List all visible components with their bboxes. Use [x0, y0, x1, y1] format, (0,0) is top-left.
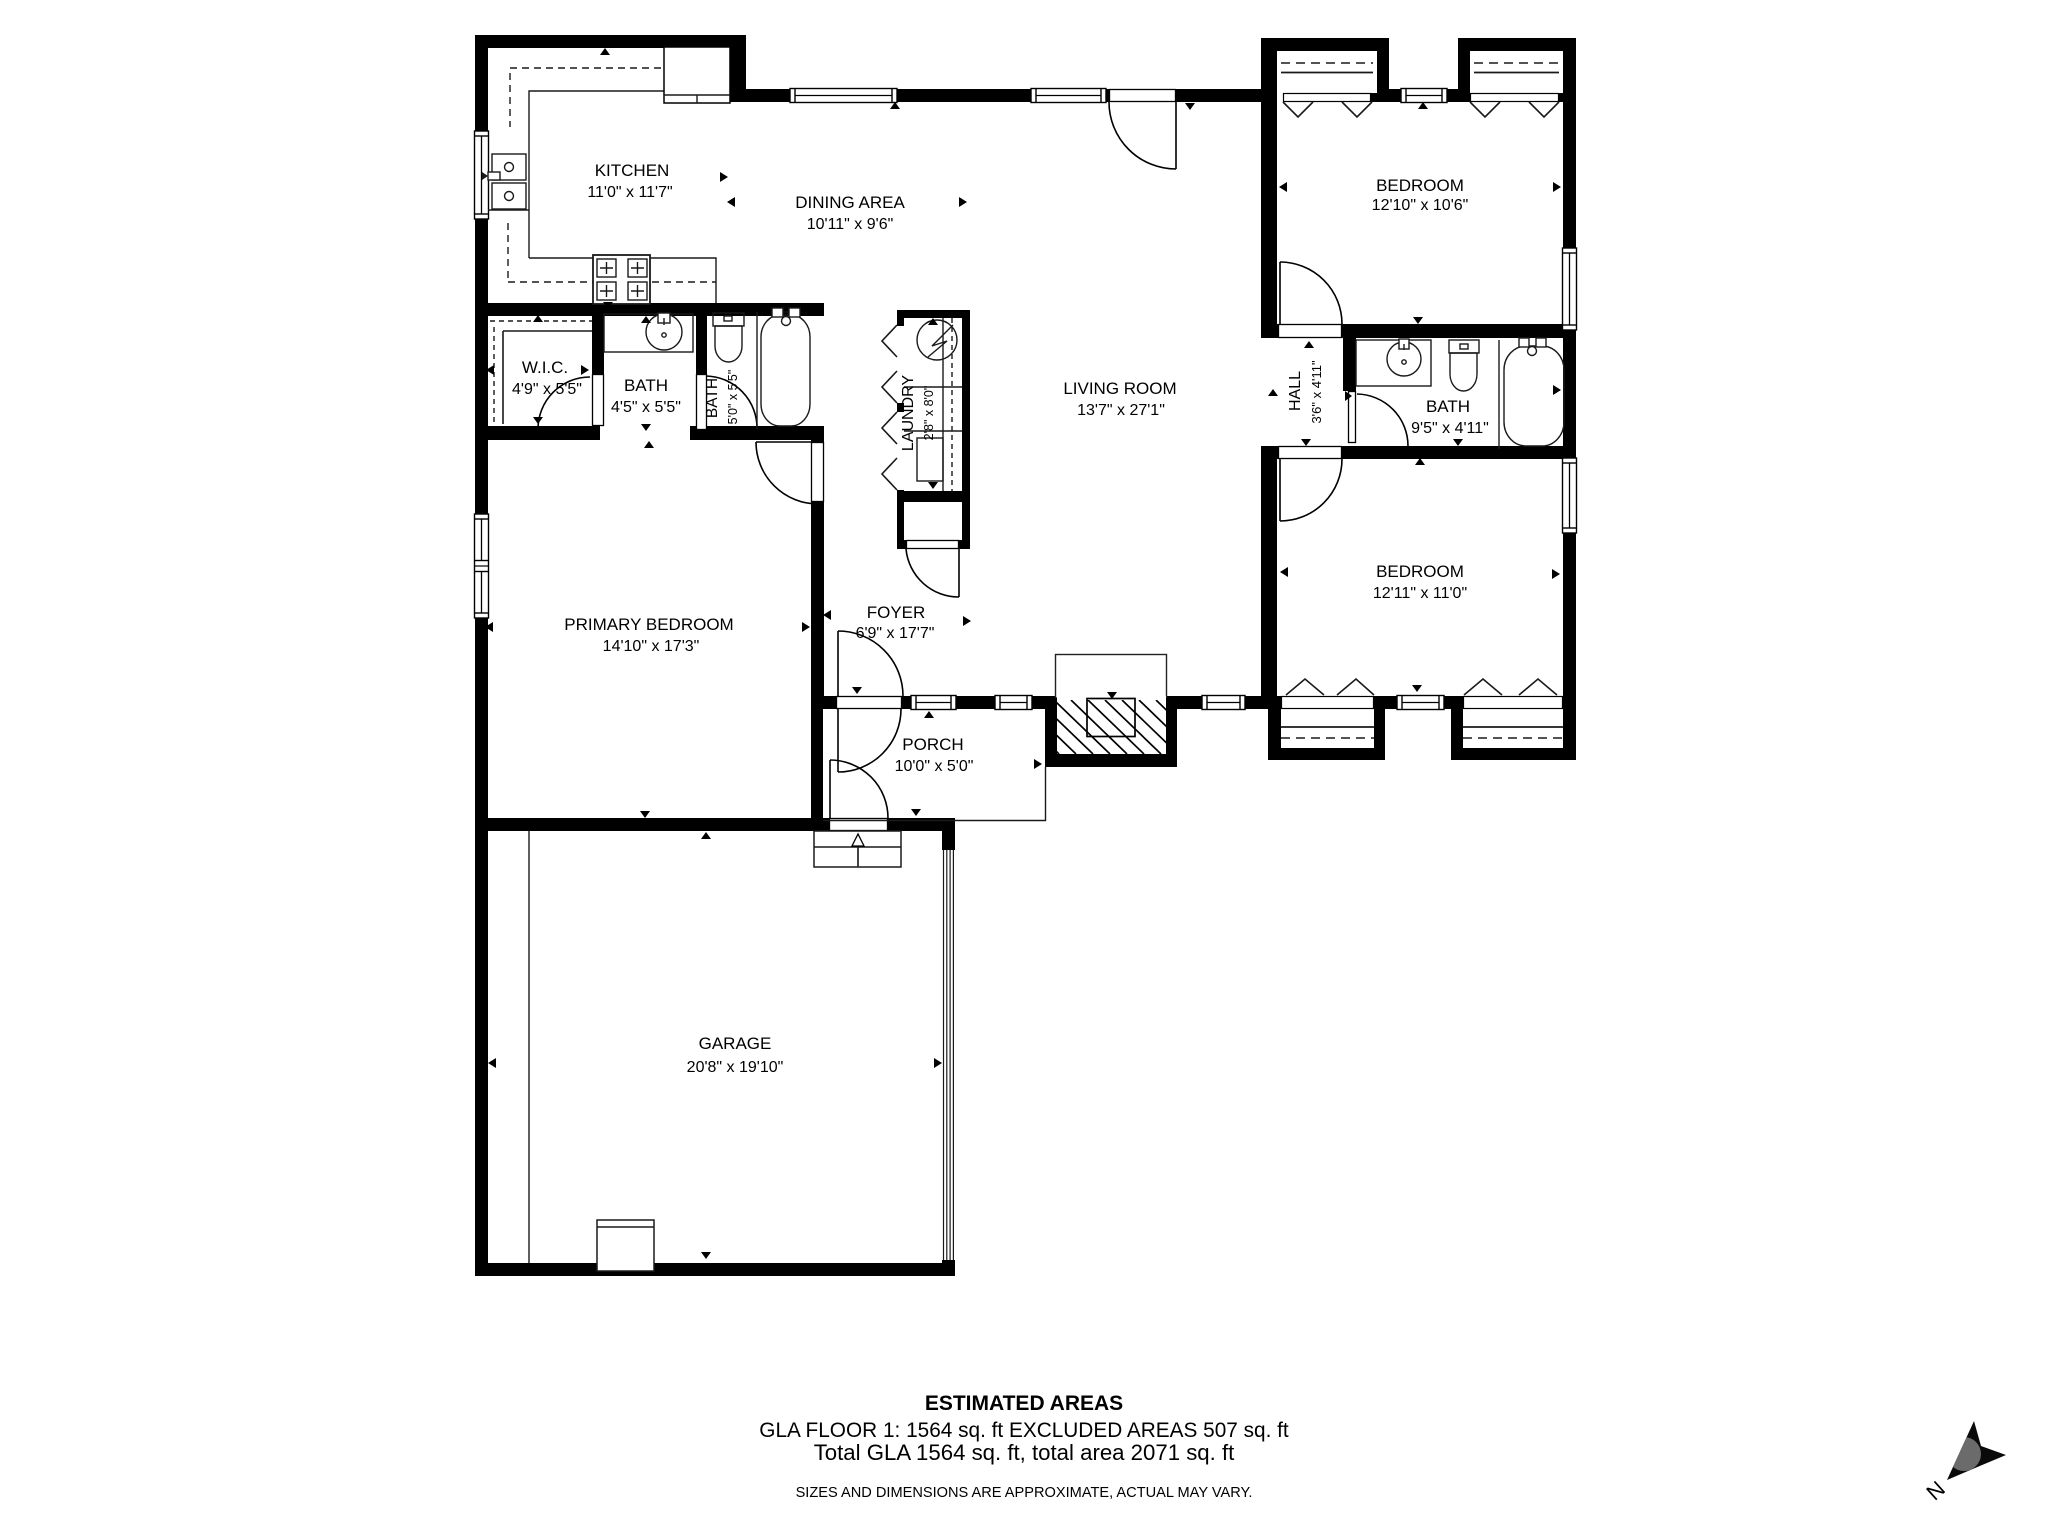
svg-text:LAUNDRY: LAUNDRY: [900, 375, 917, 452]
svg-text:HALL: HALL: [1287, 371, 1304, 411]
svg-text:6'9" x 17'7": 6'9" x 17'7": [856, 625, 935, 642]
svg-text:Total GLA 1564 sq. ft, total a: Total GLA 1564 sq. ft, total area 2071 s…: [814, 1440, 1235, 1465]
svg-text:14'10" x 17'3": 14'10" x 17'3": [603, 638, 700, 655]
svg-text:SIZES AND DIMENSIONS ARE APPRO: SIZES AND DIMENSIONS ARE APPROXIMATE, AC…: [796, 1485, 1253, 1501]
svg-text:FOYER: FOYER: [867, 603, 926, 622]
svg-text:10'0" x 5'0": 10'0" x 5'0": [895, 758, 974, 775]
svg-text:GARAGE: GARAGE: [699, 1034, 772, 1053]
svg-text:3'6" x 4'11": 3'6" x 4'11": [1309, 360, 1324, 423]
svg-text:11'0" x 11'7": 11'0" x 11'7": [587, 184, 672, 201]
svg-text:LIVING ROOM: LIVING ROOM: [1063, 379, 1176, 398]
svg-text:KITCHEN: KITCHEN: [595, 161, 670, 180]
svg-text:BATH: BATH: [704, 378, 721, 418]
svg-text:BEDROOM: BEDROOM: [1376, 562, 1464, 581]
svg-text:DINING AREA: DINING AREA: [795, 193, 905, 212]
svg-text:2'8" x 8'0": 2'8" x 8'0": [922, 386, 936, 441]
svg-text:4'9" x 5'5": 4'9" x 5'5": [512, 381, 582, 398]
svg-text:5'0" x 5'5": 5'0" x 5'5": [726, 370, 740, 425]
svg-text:PRIMARY BEDROOM: PRIMARY BEDROOM: [564, 615, 733, 634]
svg-text:4'5" x 5'5": 4'5" x 5'5": [611, 399, 681, 416]
svg-text:BATH: BATH: [624, 376, 668, 395]
svg-text:20'8" x 19'10": 20'8" x 19'10": [687, 1059, 784, 1076]
svg-text:12'11" x 11'0": 12'11" x 11'0": [1373, 585, 1467, 602]
svg-text:BATH: BATH: [1426, 397, 1470, 416]
svg-text:10'11" x 9'6": 10'11" x 9'6": [807, 216, 894, 233]
svg-text:W.I.C.: W.I.C.: [522, 358, 568, 377]
svg-text:12'10" x 10'6": 12'10" x 10'6": [1372, 197, 1469, 214]
svg-text:13'7" x 27'1": 13'7" x 27'1": [1077, 402, 1165, 419]
svg-text:BEDROOM: BEDROOM: [1376, 176, 1464, 195]
svg-text:9'5" x 4'11": 9'5" x 4'11": [1411, 420, 1489, 437]
svg-text:PORCH: PORCH: [902, 735, 963, 754]
svg-text:ESTIMATED AREAS: ESTIMATED AREAS: [925, 1392, 1123, 1415]
svg-text:GLA FLOOR 1: 1564 sq. ft EXCLU: GLA FLOOR 1: 1564 sq. ft EXCLUDED AREAS …: [759, 1419, 1289, 1442]
